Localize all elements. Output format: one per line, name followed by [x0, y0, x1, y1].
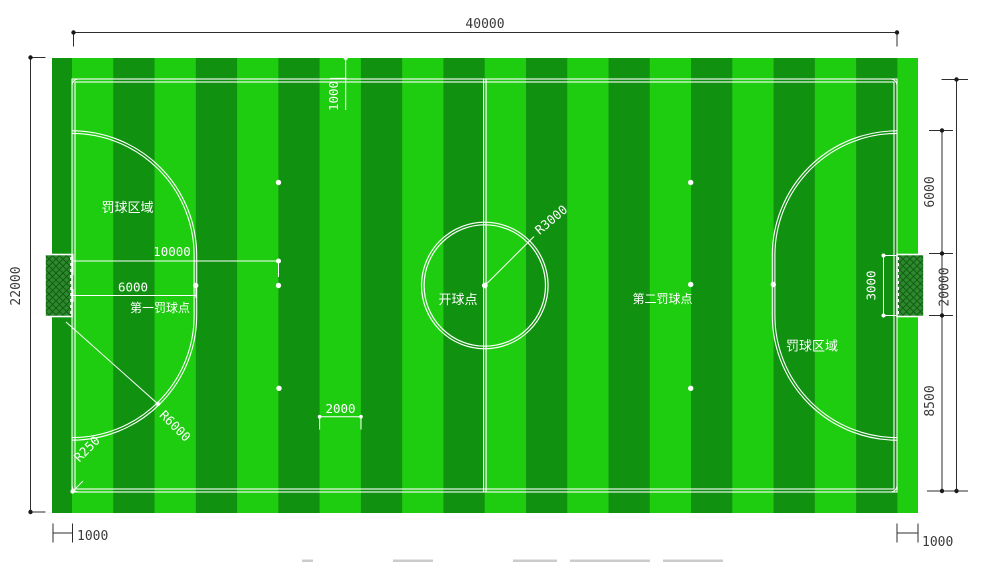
dim-top-margin: 1000 [326, 81, 341, 111]
label-first-penalty-point: 第一罚球点 [130, 301, 190, 315]
marker-dot [276, 386, 281, 391]
field-drawing-canvas: 1000 10000 6000 2000 3000 R3000 R6000 R2… [0, 0, 994, 562]
dim-first-penalty-distance: 6000 [118, 280, 148, 295]
label-second-penalty-point: 第二罚球点 [632, 292, 692, 306]
goal-left [45, 255, 72, 317]
marker-dot [688, 180, 693, 185]
first-penalty-dot-right [771, 282, 776, 287]
futsal-field-plan: 1000 10000 6000 2000 3000 R3000 R6000 R2… [0, 0, 994, 562]
dim-goal-width: 3000 [864, 270, 879, 300]
label-kickoff-point: 开球点 [438, 293, 477, 308]
second-penalty-dot-left [276, 283, 281, 288]
dim-margin-right: 1000 [922, 535, 953, 550]
goal-left-box [45, 255, 72, 317]
dim-arc-above-post: 6000 [923, 176, 938, 207]
goal-right-box [897, 255, 924, 317]
dim-pitch-width: 20000 [938, 267, 953, 306]
marker-dot [276, 180, 281, 185]
dim-second-penalty-distance: 10000 [153, 244, 191, 259]
dim-field-total-width: 22000 [9, 266, 24, 305]
label-penalty-area-right: 罚球区域 [786, 340, 838, 355]
goal-right [897, 255, 924, 317]
first-penalty-dot-left [193, 283, 198, 288]
second-penalty-dot-right [688, 282, 693, 287]
dim-margin-left: 1000 [77, 529, 108, 544]
dim-stripe-width: 2000 [325, 401, 355, 416]
label-penalty-area-left: 罚球区域 [101, 201, 153, 216]
marker-dot [688, 386, 693, 391]
dim-pitch-length: 40000 [465, 17, 504, 32]
dim-post-to-endline: 8500 [923, 385, 938, 416]
